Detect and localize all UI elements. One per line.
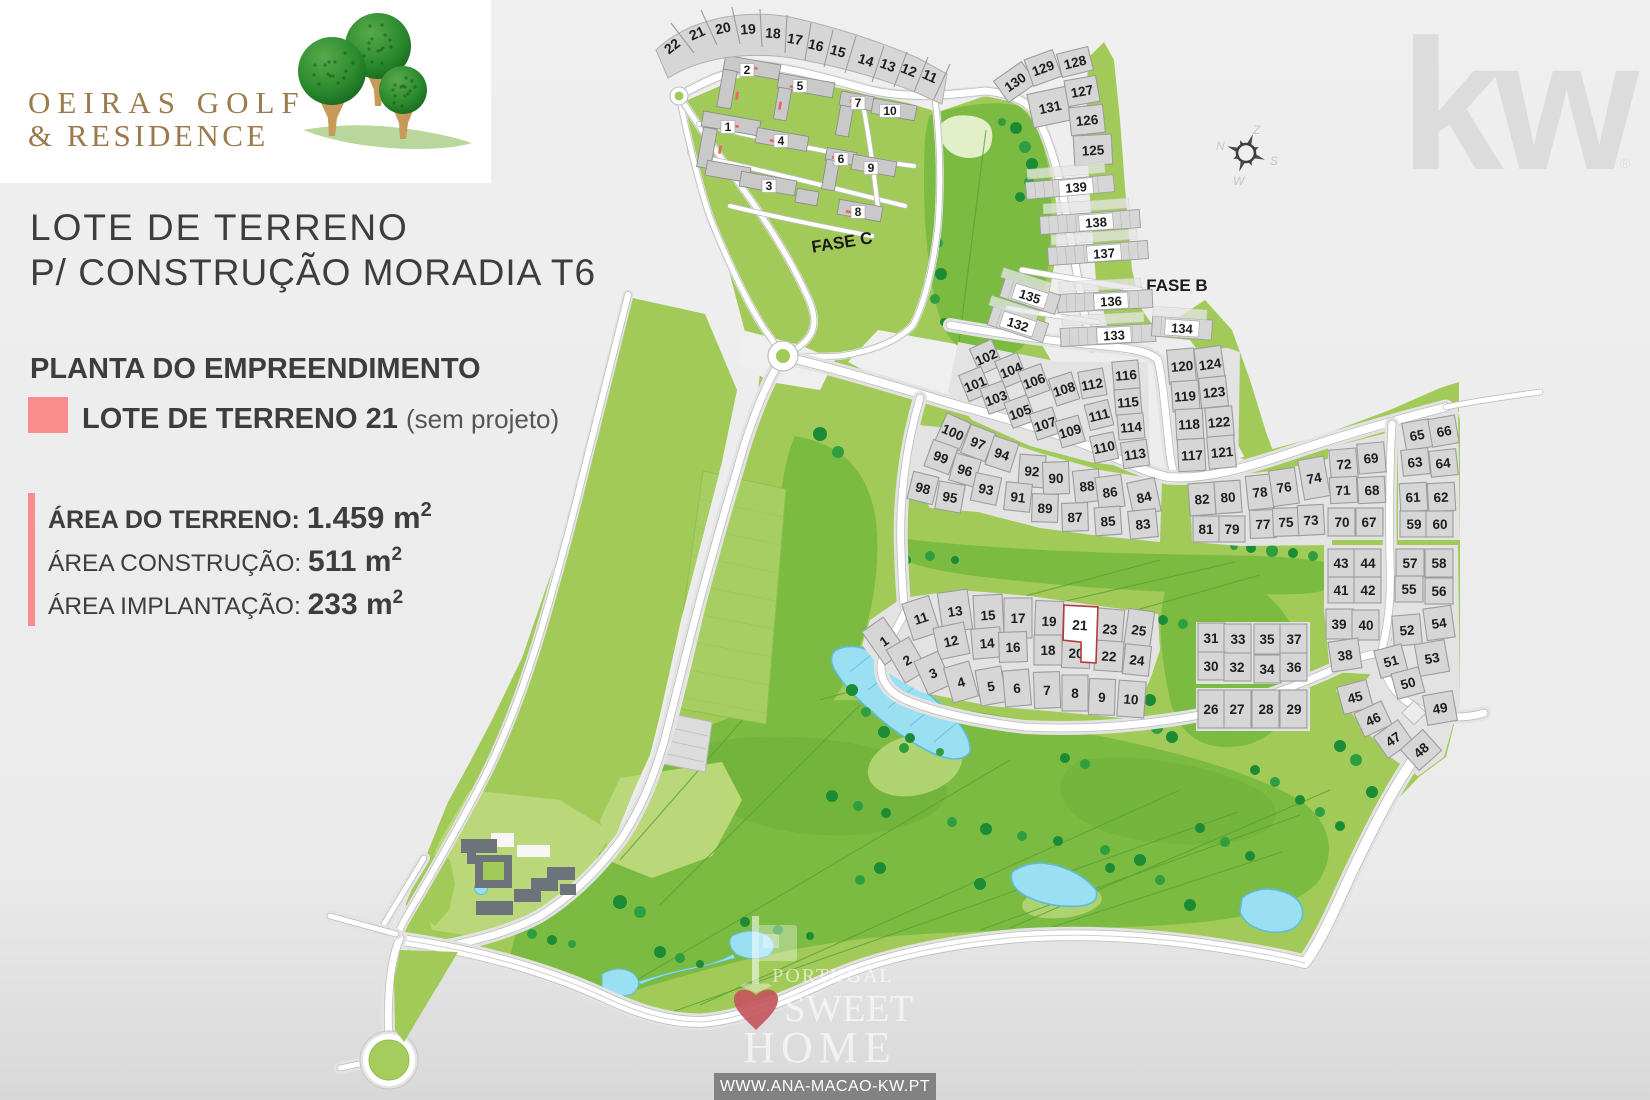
svg-text:49: 49 (1431, 700, 1448, 717)
svg-text:4: 4 (778, 134, 785, 148)
svg-text:78: 78 (1252, 484, 1269, 501)
svg-text:41: 41 (1333, 583, 1349, 598)
svg-text:39: 39 (1331, 617, 1346, 632)
svg-text:17: 17 (786, 30, 804, 48)
svg-text:8: 8 (1071, 686, 1079, 701)
svg-text:81: 81 (1198, 522, 1214, 537)
svg-text:85: 85 (1100, 513, 1117, 529)
svg-text:S: S (1270, 154, 1278, 168)
svg-text:15: 15 (980, 608, 996, 624)
svg-text:125: 125 (1081, 142, 1105, 158)
svg-text:54: 54 (1431, 615, 1448, 632)
svg-text:87: 87 (1067, 510, 1083, 526)
svg-text:115: 115 (1117, 394, 1140, 411)
svg-text:74: 74 (1305, 470, 1323, 487)
svg-text:18: 18 (1040, 643, 1056, 658)
svg-text:69: 69 (1363, 450, 1379, 466)
svg-text:120: 120 (1170, 358, 1194, 375)
svg-text:W: W (1233, 174, 1246, 188)
svg-text:82: 82 (1194, 491, 1210, 507)
svg-text:(sem projeto): (sem projeto) (406, 404, 559, 434)
svg-text:137: 137 (1093, 245, 1116, 261)
svg-text:52: 52 (1399, 622, 1415, 638)
svg-text:13: 13 (947, 603, 964, 620)
svg-text:122: 122 (1207, 414, 1231, 431)
svg-text:7: 7 (855, 96, 862, 110)
svg-text:65: 65 (1408, 427, 1426, 444)
svg-text:9: 9 (868, 161, 875, 175)
svg-text:86: 86 (1102, 484, 1119, 501)
svg-text:124: 124 (1198, 355, 1223, 373)
svg-text:23: 23 (1102, 621, 1119, 637)
svg-text:N: N (1216, 139, 1225, 153)
svg-text:43: 43 (1333, 556, 1349, 571)
svg-text:64: 64 (1435, 455, 1452, 472)
svg-text:21: 21 (1072, 617, 1089, 634)
svg-text:121: 121 (1210, 444, 1234, 461)
svg-text:WWW.ANA-MACAO-KW.PT: WWW.ANA-MACAO-KW.PT (720, 1078, 930, 1095)
svg-text:HOME: HOME (743, 1023, 897, 1072)
svg-text:LOTE DE TERRENO: LOTE DE TERRENO (30, 207, 409, 248)
svg-text:123: 123 (1202, 384, 1226, 401)
svg-text:70: 70 (1334, 515, 1349, 530)
svg-text:FASE B: FASE B (1146, 276, 1207, 295)
svg-text:139: 139 (1065, 179, 1088, 196)
svg-text:31: 31 (1203, 631, 1219, 646)
svg-text:118: 118 (1178, 416, 1201, 432)
svg-text:kw: kw (1400, 2, 1640, 209)
svg-text:16: 16 (1005, 640, 1021, 656)
svg-text:133: 133 (1103, 327, 1125, 343)
svg-text:9: 9 (1098, 690, 1106, 705)
svg-text:134: 134 (1171, 320, 1194, 337)
svg-text:40: 40 (1358, 618, 1373, 633)
svg-text:10: 10 (883, 104, 897, 118)
svg-text:83: 83 (1135, 516, 1152, 533)
svg-text:114: 114 (1120, 419, 1143, 436)
svg-text:32: 32 (1229, 660, 1244, 675)
svg-text:P/ CONSTRUÇÃO MORADIA T6: P/ CONSTRUÇÃO MORADIA T6 (30, 252, 596, 293)
svg-text:59: 59 (1406, 517, 1421, 532)
svg-text:35: 35 (1259, 632, 1275, 647)
svg-text:OEIRAS GOLF: OEIRAS GOLF (28, 85, 306, 120)
svg-text:90: 90 (1048, 471, 1064, 487)
svg-text:33: 33 (1230, 632, 1246, 647)
svg-text:28: 28 (1258, 702, 1274, 717)
svg-text:PORTUGAL: PORTUGAL (772, 965, 893, 987)
svg-text:79: 79 (1224, 522, 1239, 537)
svg-text:LOTE DE TERRENO 21: LOTE DE TERRENO 21 (82, 403, 398, 435)
svg-text:ÁREA CONSTRUÇÃO: 511 m2: ÁREA CONSTRUÇÃO: 511 m2 (48, 544, 402, 578)
svg-text:42: 42 (1360, 583, 1375, 598)
svg-text:30: 30 (1203, 659, 1218, 674)
svg-text:®: ® (1620, 155, 1631, 171)
svg-text:117: 117 (1181, 447, 1204, 463)
svg-text:19: 19 (1041, 614, 1057, 630)
svg-text:91: 91 (1010, 489, 1027, 506)
svg-text:44: 44 (1360, 556, 1376, 571)
svg-text:60: 60 (1432, 517, 1447, 532)
svg-text:26: 26 (1203, 702, 1219, 717)
svg-text:126: 126 (1075, 112, 1099, 129)
svg-text:18: 18 (765, 24, 782, 41)
svg-text:75: 75 (1278, 515, 1294, 531)
svg-text:76: 76 (1276, 479, 1293, 496)
svg-text:56: 56 (1431, 584, 1447, 599)
svg-text:PLANTA DO EMPREENDIMENTO: PLANTA DO EMPREENDIMENTO (30, 353, 481, 385)
svg-text:25: 25 (1130, 622, 1147, 639)
svg-text:138: 138 (1085, 214, 1108, 230)
svg-text:38: 38 (1337, 647, 1354, 664)
svg-text:136: 136 (1100, 293, 1122, 309)
svg-text:34: 34 (1259, 662, 1275, 677)
svg-text:71: 71 (1335, 483, 1351, 499)
svg-text:57: 57 (1402, 556, 1417, 571)
svg-text:22: 22 (1101, 648, 1117, 664)
svg-text:61: 61 (1405, 490, 1421, 506)
svg-text:62: 62 (1433, 490, 1449, 506)
svg-text:36: 36 (1286, 660, 1302, 675)
svg-text:27: 27 (1229, 702, 1244, 717)
svg-text:89: 89 (1037, 501, 1053, 517)
svg-text:14: 14 (979, 635, 996, 651)
svg-text:88: 88 (1079, 478, 1096, 495)
svg-text:24: 24 (1129, 652, 1146, 669)
svg-text:95: 95 (941, 489, 959, 506)
svg-text:1: 1 (725, 120, 732, 134)
svg-text:68: 68 (1364, 483, 1380, 499)
svg-text:113: 113 (1123, 445, 1147, 463)
svg-text:53: 53 (1423, 650, 1441, 667)
svg-text:92: 92 (1024, 463, 1040, 479)
svg-text:6: 6 (838, 152, 845, 166)
svg-text:58: 58 (1431, 556, 1447, 571)
svg-text:37: 37 (1286, 632, 1301, 647)
svg-text:8: 8 (855, 205, 862, 219)
svg-text:72: 72 (1336, 456, 1352, 472)
svg-text:3: 3 (766, 179, 773, 193)
svg-text:77: 77 (1255, 517, 1271, 533)
svg-text:& RESIDENCE: & RESIDENCE (28, 118, 269, 153)
svg-text:5: 5 (797, 79, 804, 93)
svg-text:17: 17 (1010, 611, 1025, 626)
svg-text:80: 80 (1220, 489, 1236, 505)
svg-text:73: 73 (1303, 513, 1319, 529)
svg-text:119: 119 (1174, 388, 1197, 404)
svg-text:116: 116 (1115, 367, 1138, 384)
svg-text:19: 19 (740, 20, 757, 37)
svg-text:63: 63 (1407, 454, 1424, 471)
svg-text:66: 66 (1435, 423, 1453, 440)
svg-text:7: 7 (1043, 683, 1051, 698)
svg-text:67: 67 (1361, 515, 1376, 530)
svg-text:ÁREA IMPLANTAÇÃO: 233 m2: ÁREA IMPLANTAÇÃO: 233 m2 (48, 587, 403, 621)
svg-text:55: 55 (1401, 582, 1417, 597)
svg-text:12: 12 (942, 633, 960, 651)
svg-text:2: 2 (744, 63, 751, 77)
svg-text:Z: Z (1252, 123, 1261, 137)
svg-text:29: 29 (1286, 702, 1301, 717)
svg-text:10: 10 (1123, 691, 1139, 707)
